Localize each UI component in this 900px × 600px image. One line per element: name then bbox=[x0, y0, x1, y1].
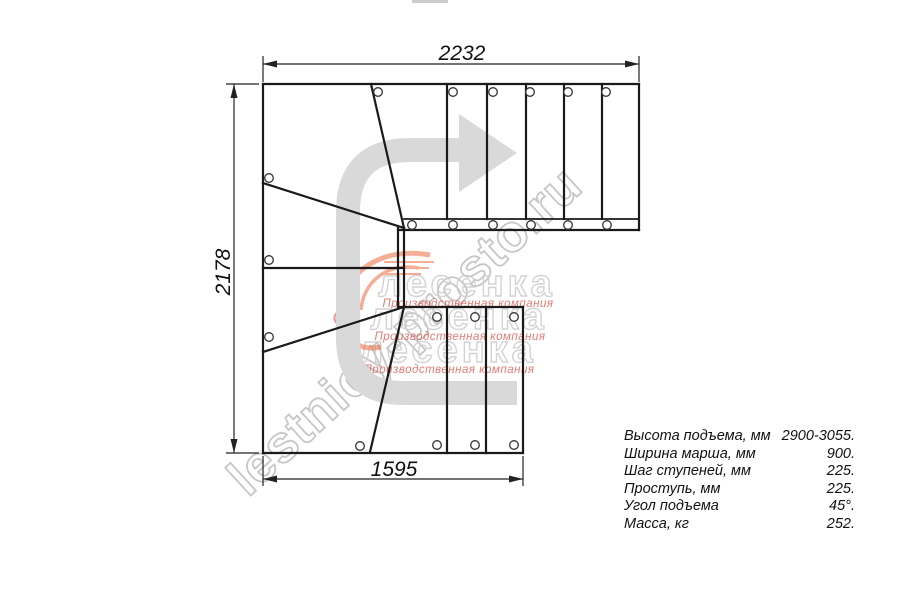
screw-hole bbox=[510, 441, 519, 450]
screw-hole bbox=[564, 88, 573, 97]
winder-line bbox=[263, 183, 404, 228]
spec-row: Ширина марша, мм 900. bbox=[624, 446, 855, 464]
spec-label: Шаг ступеней, мм bbox=[624, 463, 761, 481]
spec-row: Проступь, мм 225. bbox=[624, 481, 855, 499]
screw-hole bbox=[489, 88, 498, 97]
stair-plan-drawing: lestnicy-prosto.ru лесенка Производствен… bbox=[0, 0, 900, 600]
screw-hole bbox=[471, 441, 480, 450]
screw-hole bbox=[471, 313, 480, 322]
spec-value: 900. bbox=[827, 446, 855, 464]
spec-row: Шаг ступеней, мм 225. bbox=[624, 463, 855, 481]
spec-value: 252. bbox=[827, 516, 855, 534]
spec-value: 225. bbox=[827, 481, 855, 499]
screw-hole bbox=[449, 221, 458, 230]
screw-hole bbox=[526, 88, 535, 97]
spec-row: Высота подъема, мм 2900-3055. bbox=[624, 428, 855, 446]
dimension-top-label: 2232 bbox=[438, 42, 486, 65]
screw-hole bbox=[374, 88, 383, 97]
screw-hole bbox=[449, 88, 458, 97]
arrowhead bbox=[231, 84, 238, 98]
screw-hole bbox=[564, 221, 573, 230]
spec-row: Угол подъема 45°. bbox=[624, 498, 855, 516]
screw-hole bbox=[356, 442, 365, 451]
spec-value: 225. bbox=[827, 463, 855, 481]
screw-hole bbox=[603, 221, 612, 230]
screw-hole bbox=[489, 221, 498, 230]
spec-label: Масса, кг bbox=[624, 516, 699, 534]
dimension-bottom-label: 1595 bbox=[371, 458, 418, 481]
spec-label: Проступь, мм bbox=[624, 481, 730, 499]
spec-value: 2900-3055. bbox=[782, 428, 855, 446]
screw-hole bbox=[408, 221, 417, 230]
screw-hole bbox=[527, 221, 536, 230]
screw-hole bbox=[265, 174, 274, 183]
spec-value: 45°. bbox=[829, 498, 855, 516]
screw-hole bbox=[265, 256, 274, 265]
spec-label: Ширина марша, мм bbox=[624, 446, 766, 464]
screw-hole bbox=[602, 88, 611, 97]
arrowhead bbox=[509, 476, 523, 483]
spec-label: Высота подъема, мм bbox=[624, 428, 781, 446]
dimension-left-label: 2178 bbox=[212, 248, 235, 296]
spec-label: Угол подъема bbox=[624, 498, 729, 516]
spec-table: Высота подъема, мм 2900-3055. Ширина мар… bbox=[624, 428, 855, 534]
screw-hole bbox=[433, 313, 442, 322]
top-crop-artifact bbox=[412, 0, 448, 3]
arrowhead bbox=[625, 61, 639, 68]
spec-row: Масса, кг 252. bbox=[624, 516, 855, 534]
screw-hole bbox=[265, 333, 274, 342]
screw-hole bbox=[510, 313, 519, 322]
screw-hole bbox=[433, 441, 442, 450]
arrowhead bbox=[263, 61, 277, 68]
